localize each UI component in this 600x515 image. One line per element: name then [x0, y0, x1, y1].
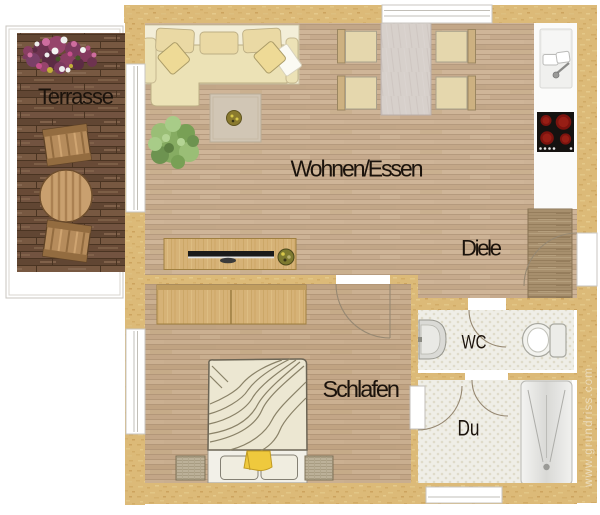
svg-text:Schlafen: Schlafen: [323, 376, 401, 402]
svg-text:Diele: Diele: [461, 236, 502, 261]
svg-text:Du: Du: [458, 416, 480, 441]
svg-text:Wohnen/Essen: Wohnen/Essen: [291, 156, 424, 182]
svg-text:WC: WC: [462, 333, 487, 354]
svg-text:Terrasse: Terrasse: [38, 84, 114, 109]
